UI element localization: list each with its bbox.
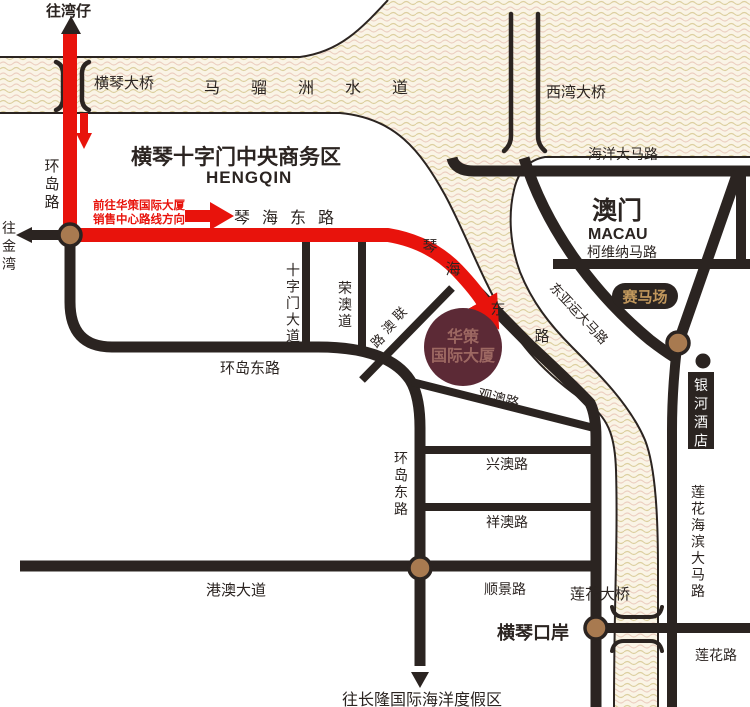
huandao-east-road-h-label: 环岛东路 xyxy=(220,360,280,377)
to-changlong-label: 往长隆国际海洋度假区 xyxy=(342,691,502,707)
lianhua-coastal-avenue-label: 莲花海滨大马路 xyxy=(691,484,705,599)
shizimen-avenue-label: 十字门大道 xyxy=(286,262,300,344)
xiwan-bridge-label: 西湾大桥 xyxy=(546,84,606,101)
map-canvas: 华策 国际大厦 赛马场 银河酒店 往湾仔 横琴大桥 马骝洲水道 西湾大桥 海洋大… xyxy=(0,0,750,707)
huace-building-name-line1: 华策 xyxy=(447,327,480,346)
road-huandao-and-east xyxy=(70,238,420,666)
maliuzhou-waterway-label: 马骝洲水道 xyxy=(204,79,439,97)
jinwan-arrow-icon xyxy=(16,227,32,243)
route-note-line2: 销售中心路线方向 xyxy=(93,212,185,226)
xiangao-road-label: 祥澳路 xyxy=(486,514,528,530)
building-marker: 华策 国际大厦 xyxy=(424,308,502,386)
lianhua-bridge-label: 莲花大桥 xyxy=(570,586,630,603)
kewei-na-road-label: 柯维纳马路 xyxy=(587,244,657,260)
lianao-char-3: 路 xyxy=(368,331,388,351)
galaxy-marker-dot xyxy=(696,354,711,369)
gangao-avenue-label: 港澳大道 xyxy=(206,582,266,599)
huace-building-name-line2: 国际大厦 xyxy=(431,346,496,365)
lianao-char-1: 联 xyxy=(390,304,410,324)
qinhai-diag-char-2: 海 xyxy=(445,261,460,278)
hengqin-port-label: 横琴口岸 xyxy=(497,622,569,643)
lianhua-road-label: 莲花路 xyxy=(695,647,737,663)
to-wanzai-label: 往湾仔 xyxy=(46,2,91,20)
hengqin-bridge-label: 横琴大桥 xyxy=(94,75,154,92)
node-gangao-junction xyxy=(409,557,431,579)
qinhai-diag-char-3: 东 xyxy=(490,301,505,318)
route-note-arrow-icon xyxy=(185,202,234,230)
huandao-road-label: 环岛路 xyxy=(44,158,59,211)
rongao-road-label: 荣澳道 xyxy=(338,280,352,329)
xingao-road-label: 兴澳路 xyxy=(486,456,528,472)
qinhai-east-road-label: 琴海东路 xyxy=(234,209,346,227)
macau-cn-label: 澳门 xyxy=(592,196,642,225)
to-jinwan-label: 往金湾 xyxy=(2,220,16,272)
road-macau-south xyxy=(672,347,677,707)
node-macau-roundabout xyxy=(667,332,689,354)
road-macau-ne-diagonal xyxy=(680,172,738,338)
huandao-east-road-v-label: 环岛东路 xyxy=(394,450,408,517)
qinhai-diag-char-4: 路 xyxy=(534,328,549,345)
changlong-arrow-icon xyxy=(411,672,429,688)
route-direction-arrow-icon xyxy=(76,113,92,149)
racecourse-label: 赛马场 xyxy=(621,288,667,306)
shunjing-road-label: 顺景路 xyxy=(484,581,526,597)
cbd-title-label: 横琴十字门中央商务区 xyxy=(131,145,341,169)
huace-building-circle xyxy=(424,308,502,386)
route-note-line1: 前往华策国际大厦 xyxy=(93,198,185,212)
macau-en-label: MACAU xyxy=(588,226,648,243)
route-map: 华策 国际大厦 赛马场 银河酒店 往湾仔 横琴大桥 马骝洲水道 西湾大桥 海洋大… xyxy=(0,0,750,707)
qinhai-diag-char-1: 琴 xyxy=(422,238,437,255)
node-hengqin-port xyxy=(585,617,607,639)
cbd-subtitle-label: HENGQIN xyxy=(206,168,292,187)
haiyang-avenue-label: 海洋大马路 xyxy=(588,146,658,162)
node-huandao-junction xyxy=(59,224,81,246)
